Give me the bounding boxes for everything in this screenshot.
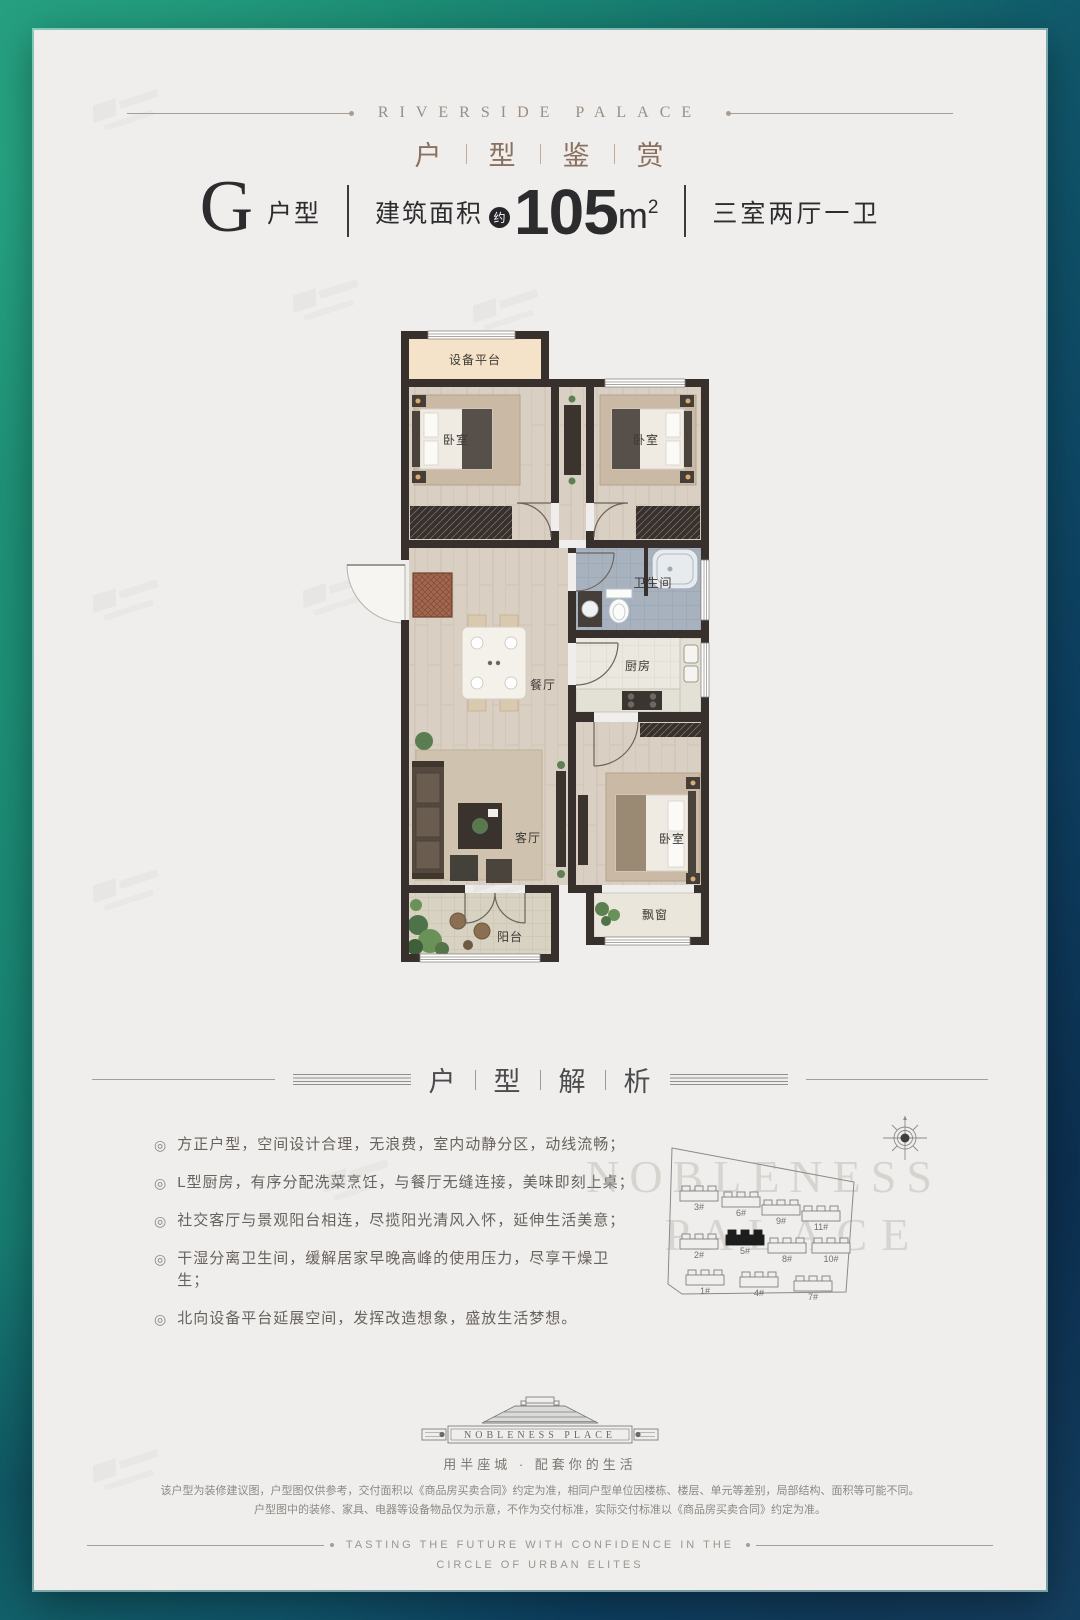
- area-exponent: 2: [648, 197, 659, 219]
- bullet-icon: ◎: [154, 1210, 167, 1232]
- char-separator: [466, 144, 467, 164]
- footer-dot: [746, 1543, 750, 1547]
- building-label: 8#: [782, 1254, 792, 1264]
- section-char: 型: [494, 1060, 522, 1099]
- section-char: 户: [415, 134, 444, 173]
- sink-icon: [578, 591, 602, 627]
- building-label: 2#: [694, 1250, 704, 1260]
- char-separator: [540, 1070, 541, 1090]
- footer-divider-left: [87, 1545, 324, 1546]
- building-label: 9#: [776, 1216, 786, 1226]
- list-item: ◎北向设备平台延展空间，发挥改造想象，盛放生活梦想。: [154, 1308, 640, 1330]
- entry-door-icon: [347, 565, 405, 623]
- watermark: [89, 860, 172, 923]
- wardrobe-icon: [410, 506, 512, 539]
- building-label: 4#: [754, 1288, 764, 1298]
- room-label-bay-window: 飘窗: [642, 908, 668, 922]
- section-char: 赏: [637, 134, 666, 173]
- vertical-divider: [684, 185, 686, 237]
- unit-title-bar: G 户型 建筑面积 约 105 m 2 三室两厅一卫: [34, 176, 1046, 239]
- list-item: ◎方正户型，空间设计合理，无浪费，室内动静分区，动线流畅；: [154, 1134, 640, 1156]
- building-label: 11#: [814, 1222, 828, 1232]
- floor-plan: 设备平台 卧室 卧室 卫生间 厨房 餐厅 客厅 卧室 阳台 飘窗: [334, 325, 726, 973]
- footer-divider-right: [756, 1545, 993, 1546]
- brand-slogan: 用半座城 · 配套你的生活: [34, 1454, 1046, 1473]
- unit-type-label: 户型: [267, 194, 321, 239]
- door-mat-icon: [413, 573, 452, 617]
- watermark: [289, 270, 372, 333]
- feature-text: 方正户型，空间设计合理，无浪费，室内动静分区，动线流畅；: [177, 1134, 625, 1156]
- section-divider-right: [806, 1079, 989, 1080]
- room-label-master-bedroom: 卧室: [659, 831, 685, 846]
- coffee-table-icon: [458, 803, 502, 849]
- feature-text: 干湿分离卫生间，缓解居家早晚高峰的使用压力，尽享干燥卫生；: [177, 1248, 640, 1292]
- bed-icon: [606, 773, 700, 884]
- site-map: 3# 6# 9# 11# 2# 5# 8# 10# 1# 4# 7#: [650, 1134, 880, 1314]
- logo-name: NOBLENESS PLACE: [464, 1430, 616, 1441]
- section-char: 型: [489, 134, 518, 173]
- disclaimer-line: 户型图中的装修、家具、电器等设备物品仅为示意，不作为交付标准，实际交付标准以《商…: [34, 1501, 1046, 1520]
- room-label-bathroom: 卫生间: [633, 576, 672, 590]
- stripe-ornament: [293, 1074, 411, 1085]
- room-label-living: 客厅: [515, 830, 541, 845]
- wicker-chair-icon: [450, 913, 466, 929]
- rooms-summary: 三室两厅一卫: [712, 194, 880, 239]
- poster-card: RIVERSIDE PALACE 户 型 鉴 赏 G 户型 建筑面积 约 105…: [34, 30, 1046, 1590]
- tv-console-icon: [556, 761, 566, 878]
- armchair-icon: [486, 859, 512, 883]
- section-char: 析: [624, 1060, 652, 1099]
- bullet-icon: ◎: [154, 1172, 167, 1194]
- brand-row: RIVERSIDE PALACE: [34, 104, 1046, 122]
- room-label-bedroom: 卧室: [443, 432, 469, 447]
- wardrobe-icon: [640, 723, 701, 737]
- building-footprints: [680, 1186, 850, 1291]
- building-label: 10#: [823, 1254, 838, 1264]
- footer-tagline-line2: CIRCLE OF URBAN ELITES: [34, 1559, 1046, 1571]
- section-char: 解: [559, 1060, 587, 1099]
- section-title-analysis: 户 型 解 析: [92, 1060, 988, 1099]
- feature-text: L型厨房，有序分配洗菜烹饪，与餐厅无缝连接，美味即刻上桌；: [177, 1172, 634, 1194]
- section-title-appreciation: 户 型 鉴 赏: [34, 134, 1046, 173]
- room-label-kitchen: 厨房: [625, 658, 651, 673]
- dresser-icon: [578, 795, 588, 865]
- room-label-equipment: 设备平台: [449, 352, 501, 367]
- brand-logo-icon: NOBLENESS PLACE: [420, 1396, 660, 1452]
- watermark: [89, 570, 172, 633]
- stripe-ornament: [670, 1074, 788, 1085]
- approx-badge: 约: [489, 207, 510, 228]
- char-separator: [614, 144, 615, 164]
- feature-text: 社交客厅与景观阳台相连，尽揽阳光清风入怀，延伸生活美意；: [177, 1210, 625, 1232]
- area-label: 建筑面积: [375, 194, 483, 239]
- area-unit: m: [618, 195, 648, 239]
- room-label-dining: 餐厅: [530, 677, 556, 692]
- building-label: 3#: [694, 1202, 704, 1212]
- bullet-icon: ◎: [154, 1248, 167, 1292]
- vertical-divider: [347, 185, 349, 237]
- footer: TASTING THE FUTURE WITH CONFIDENCE IN TH…: [34, 1536, 1046, 1571]
- disclaimer-line: 该户型为装修建议图，户型图仅供参考，交付面积以《商品房买卖合同》约定为准，相同户…: [34, 1482, 1046, 1501]
- armchair-icon: [450, 855, 478, 881]
- side-table-icon: [463, 940, 473, 950]
- dining-table-icon: [462, 615, 526, 711]
- brand-name: RIVERSIDE PALACE: [378, 104, 702, 122]
- section-char: 鉴: [563, 134, 592, 173]
- list-item: ◎L型厨房，有序分配洗菜烹饪，与餐厅无缝连接，美味即刻上桌；: [154, 1172, 640, 1194]
- plant-icon: [415, 732, 433, 750]
- section-char: 户: [429, 1060, 457, 1099]
- list-item: ◎社交客厅与景观阳台相连，尽揽阳光清风入怀，延伸生活美意；: [154, 1210, 640, 1232]
- char-separator: [540, 144, 541, 164]
- building-label-highlighted: 5#: [740, 1246, 750, 1256]
- brand-logo: NOBLENESS PLACE: [34, 1396, 1046, 1452]
- wardrobe-icon: [636, 506, 700, 539]
- footer-dot: [330, 1543, 334, 1547]
- building-label: 7#: [808, 1292, 818, 1302]
- stove-icon: [622, 691, 662, 710]
- room-label-bedroom: 卧室: [633, 432, 659, 447]
- bullet-icon: ◎: [154, 1134, 167, 1156]
- hall-cabinet-icon: [564, 396, 581, 485]
- section-divider-left: [92, 1079, 275, 1080]
- footer-tagline-line1: TASTING THE FUTURE WITH CONFIDENCE IN TH…: [340, 1536, 740, 1554]
- brand-divider-left: [127, 113, 352, 114]
- char-separator: [475, 1070, 476, 1090]
- unit-type-letter: G: [200, 176, 253, 239]
- room-label-balcony: 阳台: [497, 929, 523, 944]
- building-label: 6#: [736, 1208, 746, 1218]
- list-item: ◎干湿分离卫生间，缓解居家早晚高峰的使用压力，尽享干燥卫生；: [154, 1248, 640, 1292]
- brand-divider-right: [728, 113, 953, 114]
- compass-icon: [883, 1116, 927, 1160]
- disclaimer: 该户型为装修建议图，户型图仅供参考，交付面积以《商品房买卖合同》约定为准，相同户…: [34, 1482, 1046, 1520]
- building-label: 1#: [700, 1286, 710, 1296]
- bullet-icon: ◎: [154, 1308, 167, 1330]
- feature-text: 北向设备平台延展空间，发挥改造想象，盛放生活梦想。: [177, 1308, 577, 1330]
- wicker-chair-icon: [474, 923, 490, 939]
- feature-list: ◎方正户型，空间设计合理，无浪费，室内动静分区，动线流畅； ◎L型厨房，有序分配…: [154, 1134, 640, 1346]
- area-value: 105: [514, 185, 618, 239]
- char-separator: [605, 1070, 606, 1090]
